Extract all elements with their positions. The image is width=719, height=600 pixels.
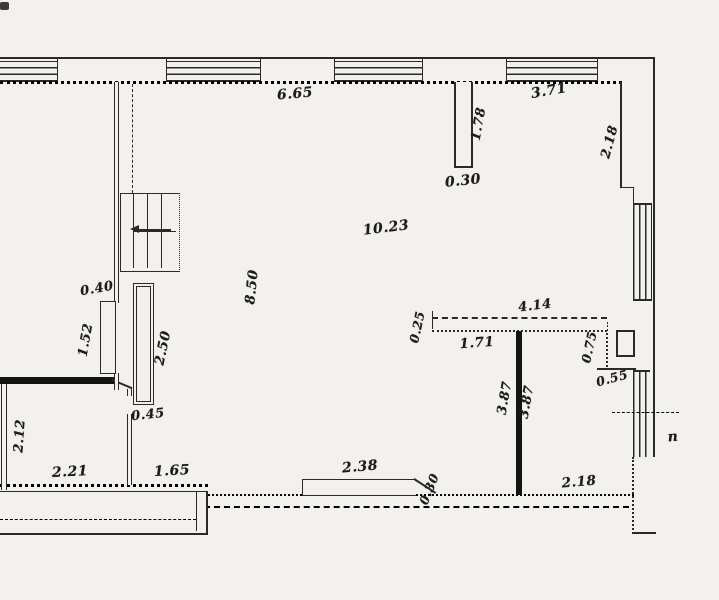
dimension-label: 2.38 [341,457,378,476]
dimension-label: 1.65 [154,462,191,480]
dimension-label: 2.21 [52,463,89,481]
dimension-label: 0.30 [416,471,442,507]
dimension-label: 8.50 [242,269,262,305]
dimension-label: 3.87 [517,384,538,420]
dimension-label: 6.65 [276,84,313,103]
dimension-label: 1.52 [76,322,97,358]
dimension-layer: 6.653.711.782.180.3010.238.500.401.522.5… [0,0,719,600]
dimension-label: 0.40 [79,279,115,300]
dimension-label: 0.30 [444,171,482,191]
dimension-label: 3.71 [530,80,568,102]
dimension-label: 0.45 [130,406,165,424]
dimension-label: 0.55 [594,367,629,390]
dimension-label: 2.18 [598,124,621,160]
dimension-label: 1.71 [459,334,495,352]
dimension-label: 2.18 [561,473,597,492]
dimension-label: 2.12 [11,419,28,454]
dimension-label: 1.78 [469,106,490,142]
dimension-label: 2.50 [152,329,175,366]
dimension-label: п [667,429,679,446]
dimension-label: 3.87 [495,380,516,416]
dimension-label: 4.14 [517,297,552,316]
dimension-label: 0.75 [578,330,599,365]
dimension-label: 0.25 [406,310,427,345]
floor-plan-canvas: 6.653.711.782.180.3010.238.500.401.522.5… [0,0,719,600]
dimension-label: 10.23 [362,217,410,239]
